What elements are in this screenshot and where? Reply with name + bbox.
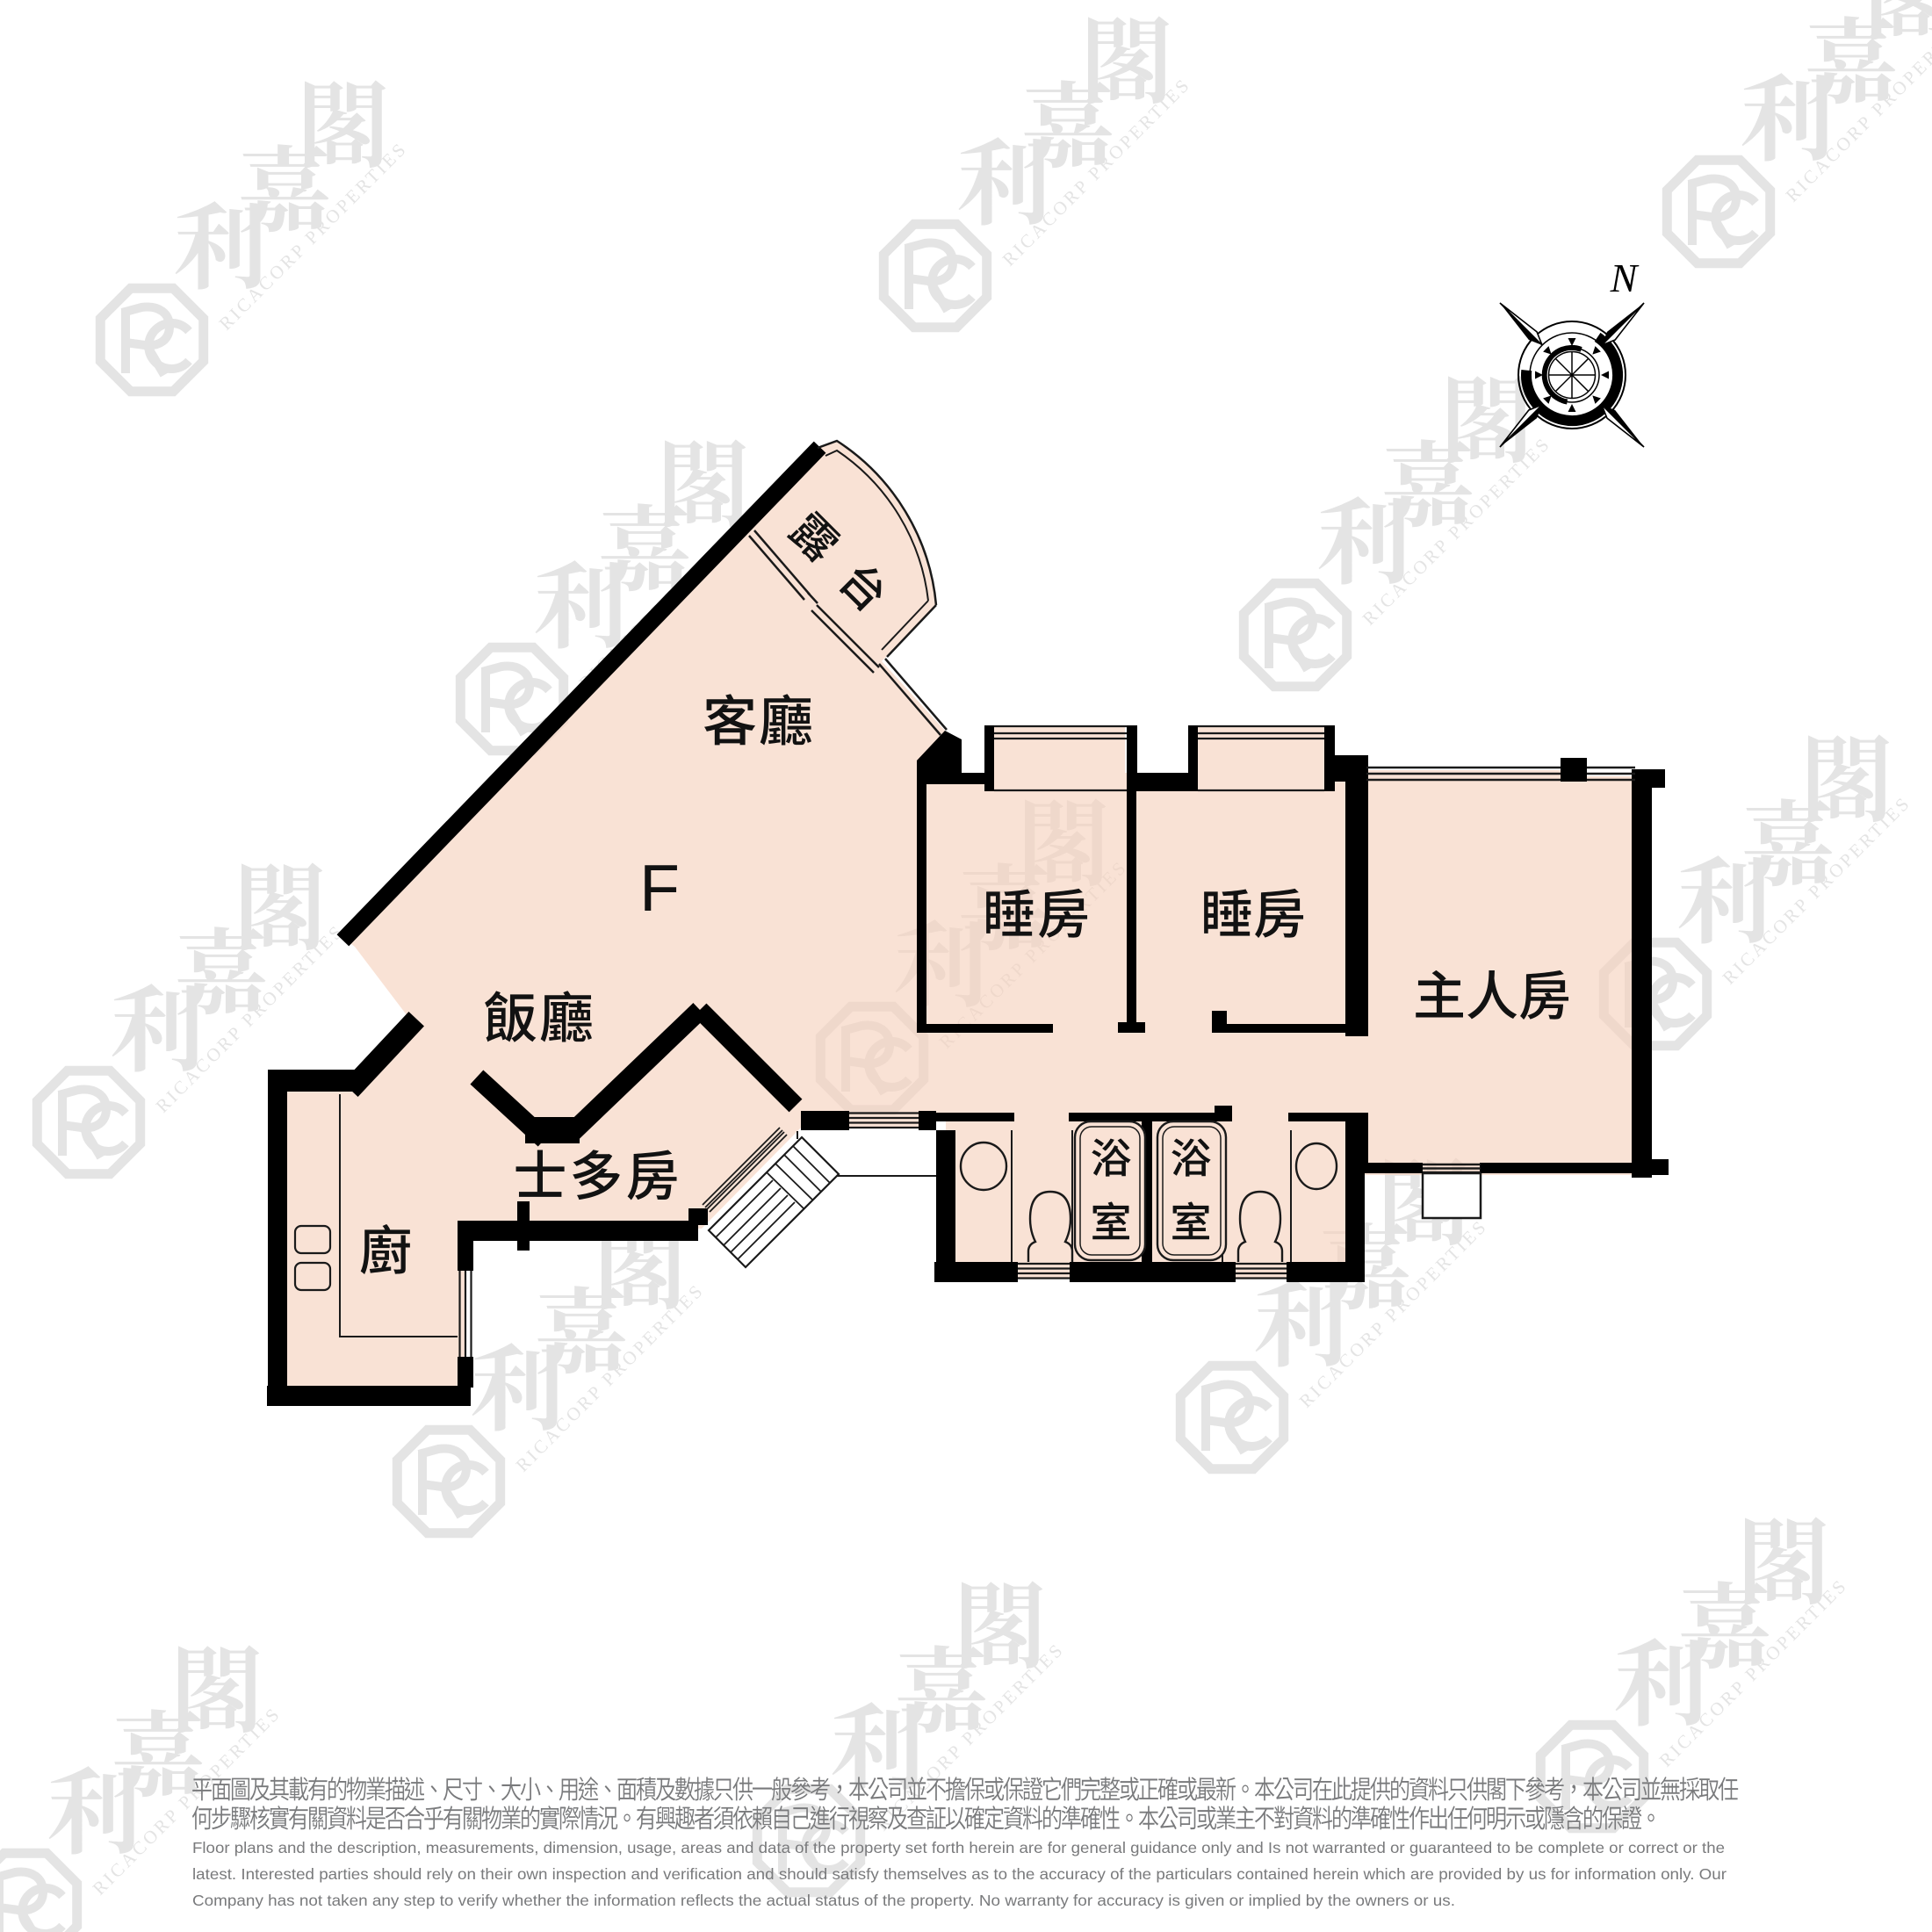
- svg-text:F: F: [639, 851, 680, 925]
- svg-text:Floor plans and the descriptio: Floor plans and the description, measure…: [192, 1839, 1725, 1856]
- svg-text:latest. Interested parties sho: latest. Interested parties should rely o…: [192, 1865, 1727, 1883]
- svg-text:N: N: [1610, 256, 1640, 300]
- svg-text:Company has not taken any step: Company has not taken any step to verify…: [192, 1892, 1455, 1909]
